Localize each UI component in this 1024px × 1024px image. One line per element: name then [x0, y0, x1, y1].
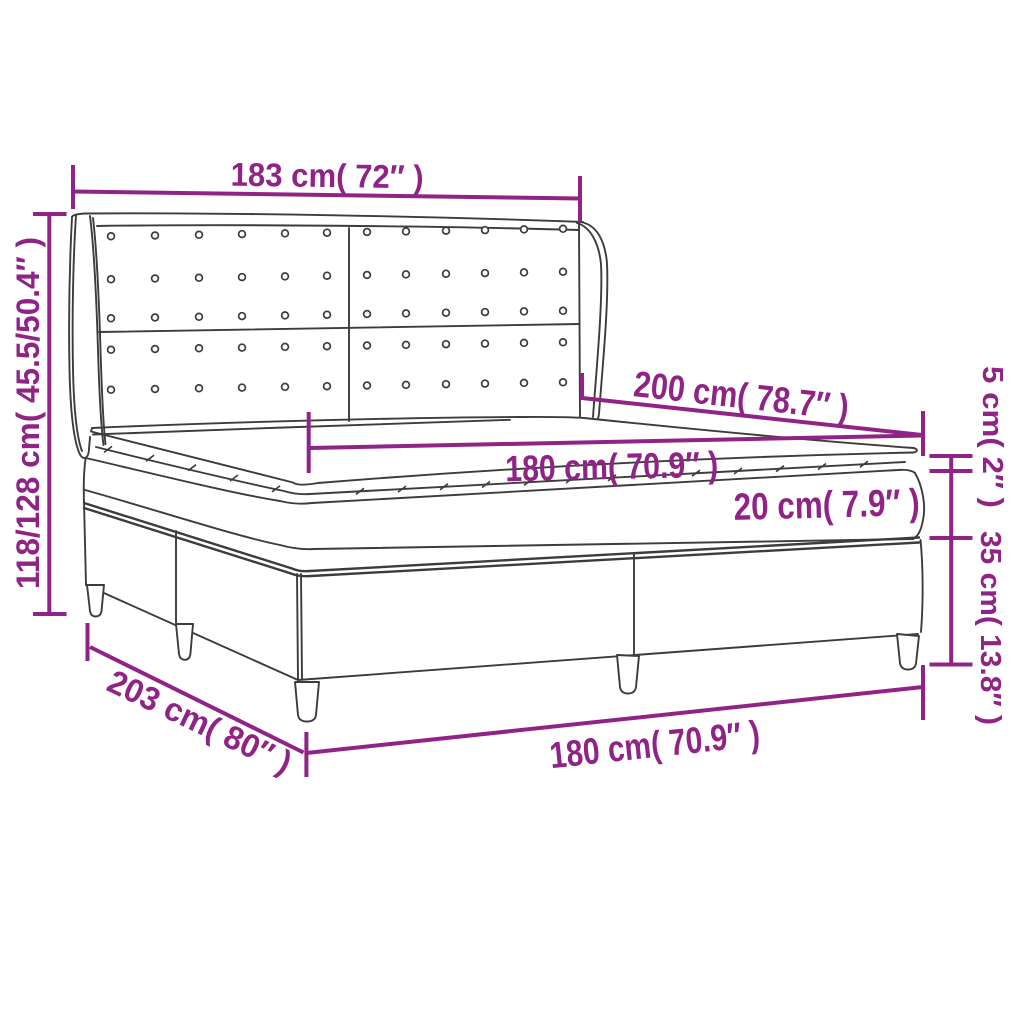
- svg-text:180 cm( 70.9″ ): 180 cm( 70.9″ ): [505, 444, 719, 489]
- svg-text:183 cm( 72″ ): 183 cm( 72″ ): [230, 156, 423, 196]
- svg-text:35 cm( 13.8″ ): 35 cm( 13.8″ ): [974, 531, 1006, 725]
- svg-text:20 cm( 7.9″ ): 20 cm( 7.9″ ): [733, 482, 920, 529]
- svg-text:5 cm( 2″ ): 5 cm( 2″ ): [976, 366, 1008, 508]
- svg-text:118/128 cm( 45.5/50.4″ ): 118/128 cm( 45.5/50.4″ ): [10, 237, 46, 589]
